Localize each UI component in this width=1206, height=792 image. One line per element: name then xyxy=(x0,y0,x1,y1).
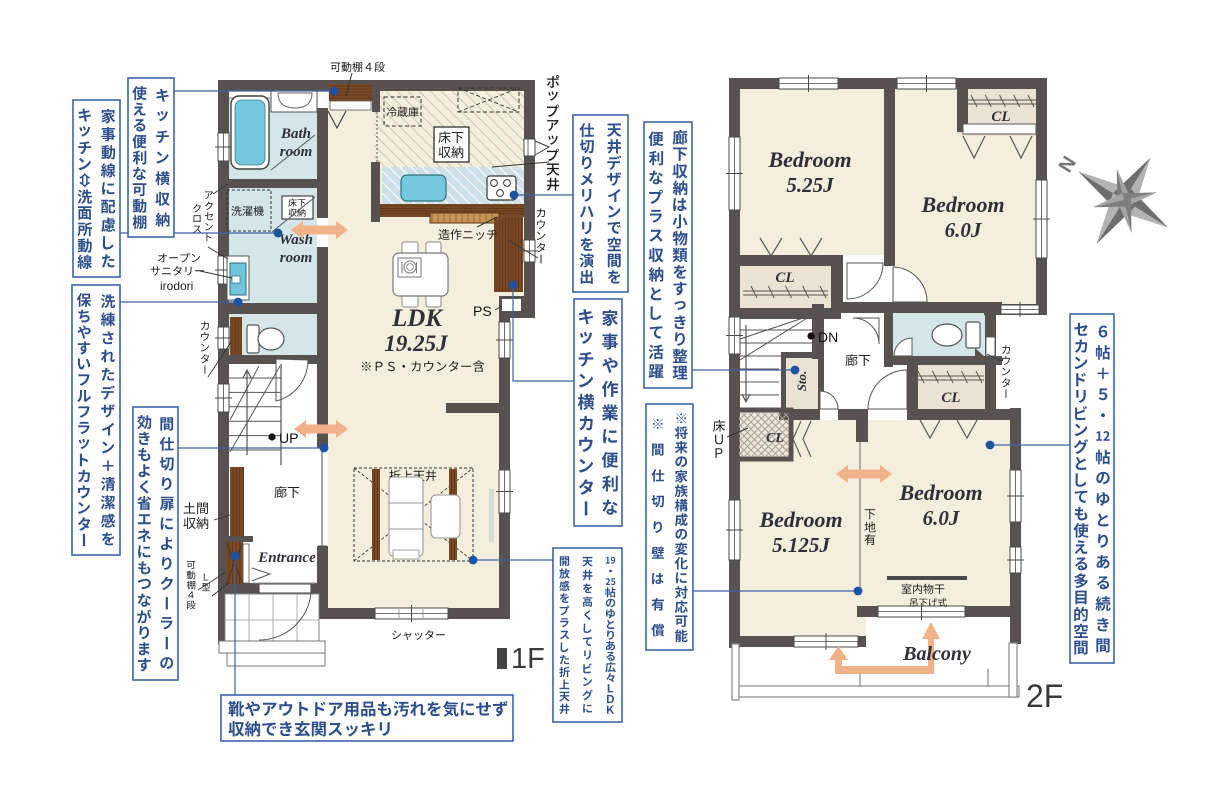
svg-text:Balcony: Balcony xyxy=(902,643,971,665)
svg-text:Entrance: Entrance xyxy=(257,550,316,566)
svg-text:Bedroom: Bedroom xyxy=(767,147,851,172)
svg-text:CL: CL xyxy=(991,109,1010,125)
svg-text:5.25J: 5.25J xyxy=(786,173,835,197)
svg-text:1F: 1F xyxy=(511,643,545,675)
svg-text:LDK: LDK xyxy=(391,305,444,332)
svg-text:Bath: Bath xyxy=(280,126,311,142)
svg-text:Bedroom: Bedroom xyxy=(898,480,982,505)
svg-text:2F: 2F xyxy=(1026,678,1063,714)
svg-text:DN: DN xyxy=(818,329,838,345)
svg-text:room: room xyxy=(280,144,313,160)
svg-text:room: room xyxy=(280,250,313,266)
svg-text:19.25J: 19.25J xyxy=(384,331,449,356)
svg-text:UP: UP xyxy=(279,430,298,446)
svg-text:PS: PS xyxy=(473,303,492,319)
svg-text:irodori: irodori xyxy=(160,279,193,293)
svg-text:Bedroom: Bedroom xyxy=(758,507,842,532)
svg-text:CL: CL xyxy=(941,390,960,406)
svg-text:Bedroom: Bedroom xyxy=(920,192,1004,217)
svg-text:CL: CL xyxy=(766,431,784,446)
svg-text:N: N xyxy=(1055,153,1081,177)
svg-text:5.125J: 5.125J xyxy=(772,533,831,557)
svg-text:6.0J: 6.0J xyxy=(923,506,961,530)
svg-text:6.0J: 6.0J xyxy=(945,218,983,242)
svg-text:CL: CL xyxy=(775,270,794,286)
